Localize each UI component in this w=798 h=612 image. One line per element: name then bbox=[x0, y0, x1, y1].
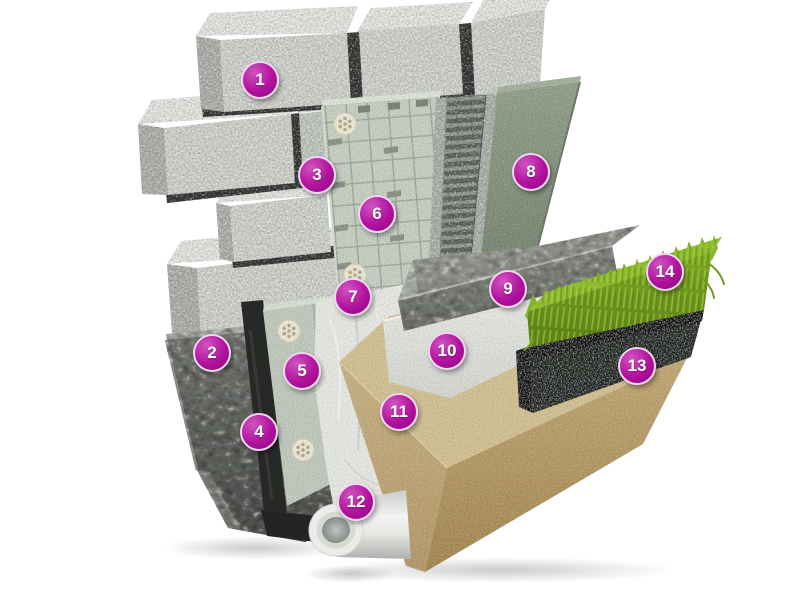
hotspot-2[interactable]: 2 bbox=[193, 334, 231, 372]
hotspot-12[interactable]: 12 bbox=[337, 483, 375, 521]
hotspot-1[interactable]: 1 bbox=[241, 61, 279, 99]
hotspot-11[interactable]: 11 bbox=[380, 393, 418, 431]
hotspot-8[interactable]: 8 bbox=[512, 153, 550, 191]
hotspot-10[interactable]: 10 bbox=[428, 332, 466, 370]
hotspot-13[interactable]: 13 bbox=[618, 347, 656, 385]
hotspot-layer: 1234567891011121314 bbox=[0, 0, 798, 612]
diagram-stage: 1234567891011121314 bbox=[0, 0, 798, 612]
hotspot-3[interactable]: 3 bbox=[298, 156, 336, 194]
hotspot-4[interactable]: 4 bbox=[240, 413, 278, 451]
hotspot-7[interactable]: 7 bbox=[334, 278, 372, 316]
hotspot-6[interactable]: 6 bbox=[358, 195, 396, 233]
hotspot-14[interactable]: 14 bbox=[646, 253, 684, 291]
hotspot-5[interactable]: 5 bbox=[283, 352, 321, 390]
hotspot-9[interactable]: 9 bbox=[489, 270, 527, 308]
